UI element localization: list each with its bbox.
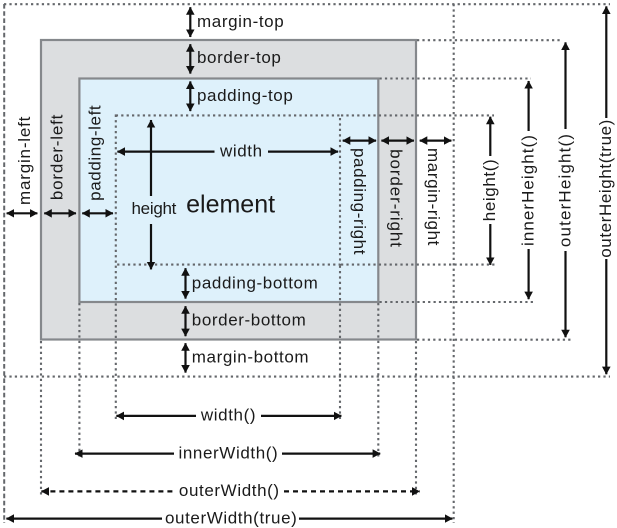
svg-text:border-right: border-right [386,149,405,248]
svg-text:margin-top: margin-top [197,12,284,31]
svg-text:width(): width() [200,406,256,425]
svg-text:outerHeight(): outerHeight() [555,133,574,247]
svg-text:border-bottom: border-bottom [192,311,307,330]
svg-text:margin-left: margin-left [15,116,34,205]
svg-text:outerHeight(true): outerHeight(true) [596,119,615,258]
svg-text:padding-top: padding-top [197,86,293,105]
svg-text:outerWidth(): outerWidth() [179,481,280,500]
svg-text:height: height [132,199,177,218]
svg-text:border-top: border-top [197,48,281,67]
svg-text:element: element [186,191,275,219]
svg-text:width: width [219,141,263,160]
svg-text:outerWidth(true): outerWidth(true) [165,508,297,527]
svg-text:innerWidth(): innerWidth() [179,443,279,462]
svg-text:height(): height() [480,159,499,221]
svg-text:padding-left: padding-left [85,105,104,201]
svg-text:padding-right: padding-right [350,148,369,255]
svg-text:border-left: border-left [47,114,66,200]
svg-text:margin-bottom: margin-bottom [192,348,309,367]
svg-text:padding-bottom: padding-bottom [192,273,319,292]
svg-text:innerHeight(): innerHeight() [518,134,537,246]
svg-text:margin-right: margin-right [424,148,443,246]
